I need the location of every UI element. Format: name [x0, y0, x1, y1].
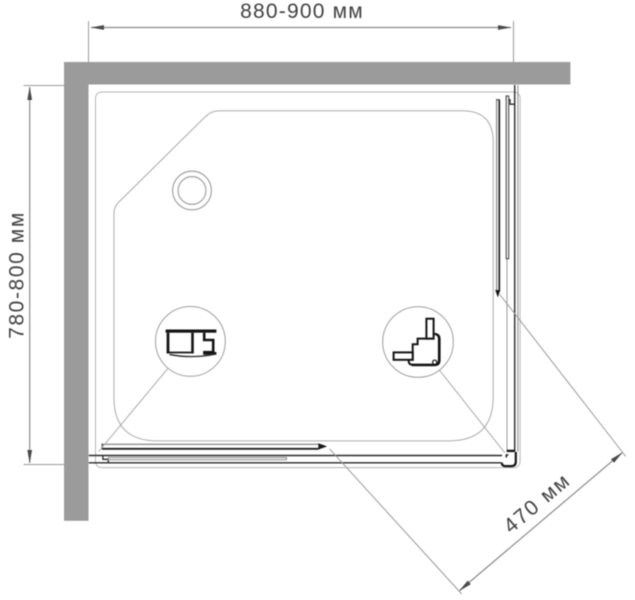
svg-text:780-800 мм: 780-800 мм — [6, 211, 29, 339]
svg-text:880-900 мм: 880-900 мм — [240, 0, 364, 23]
